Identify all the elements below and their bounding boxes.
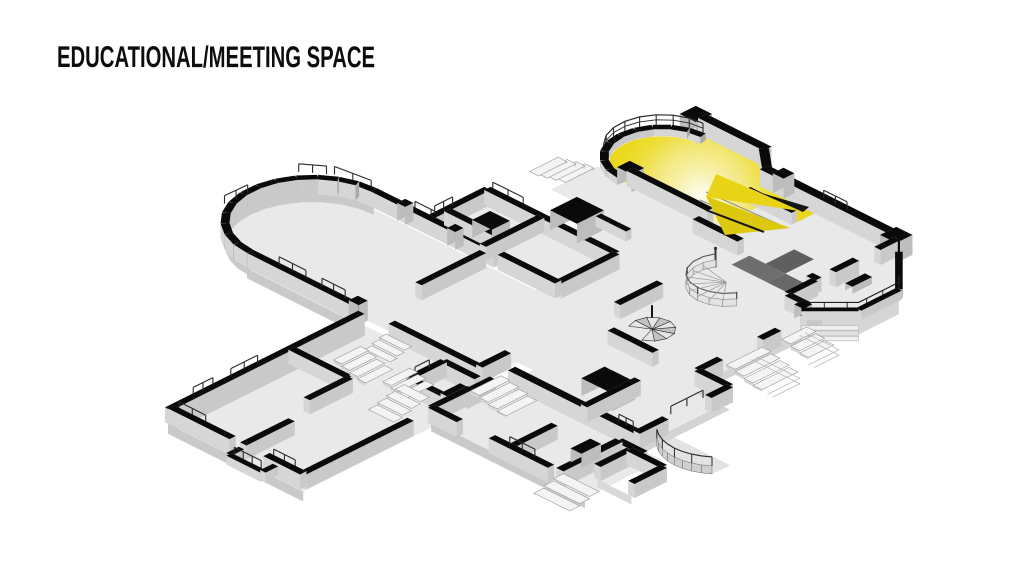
svg-text:EDUCATIONAL/MEETING SPACE: EDUCATIONAL/MEETING SPACE	[57, 41, 375, 74]
